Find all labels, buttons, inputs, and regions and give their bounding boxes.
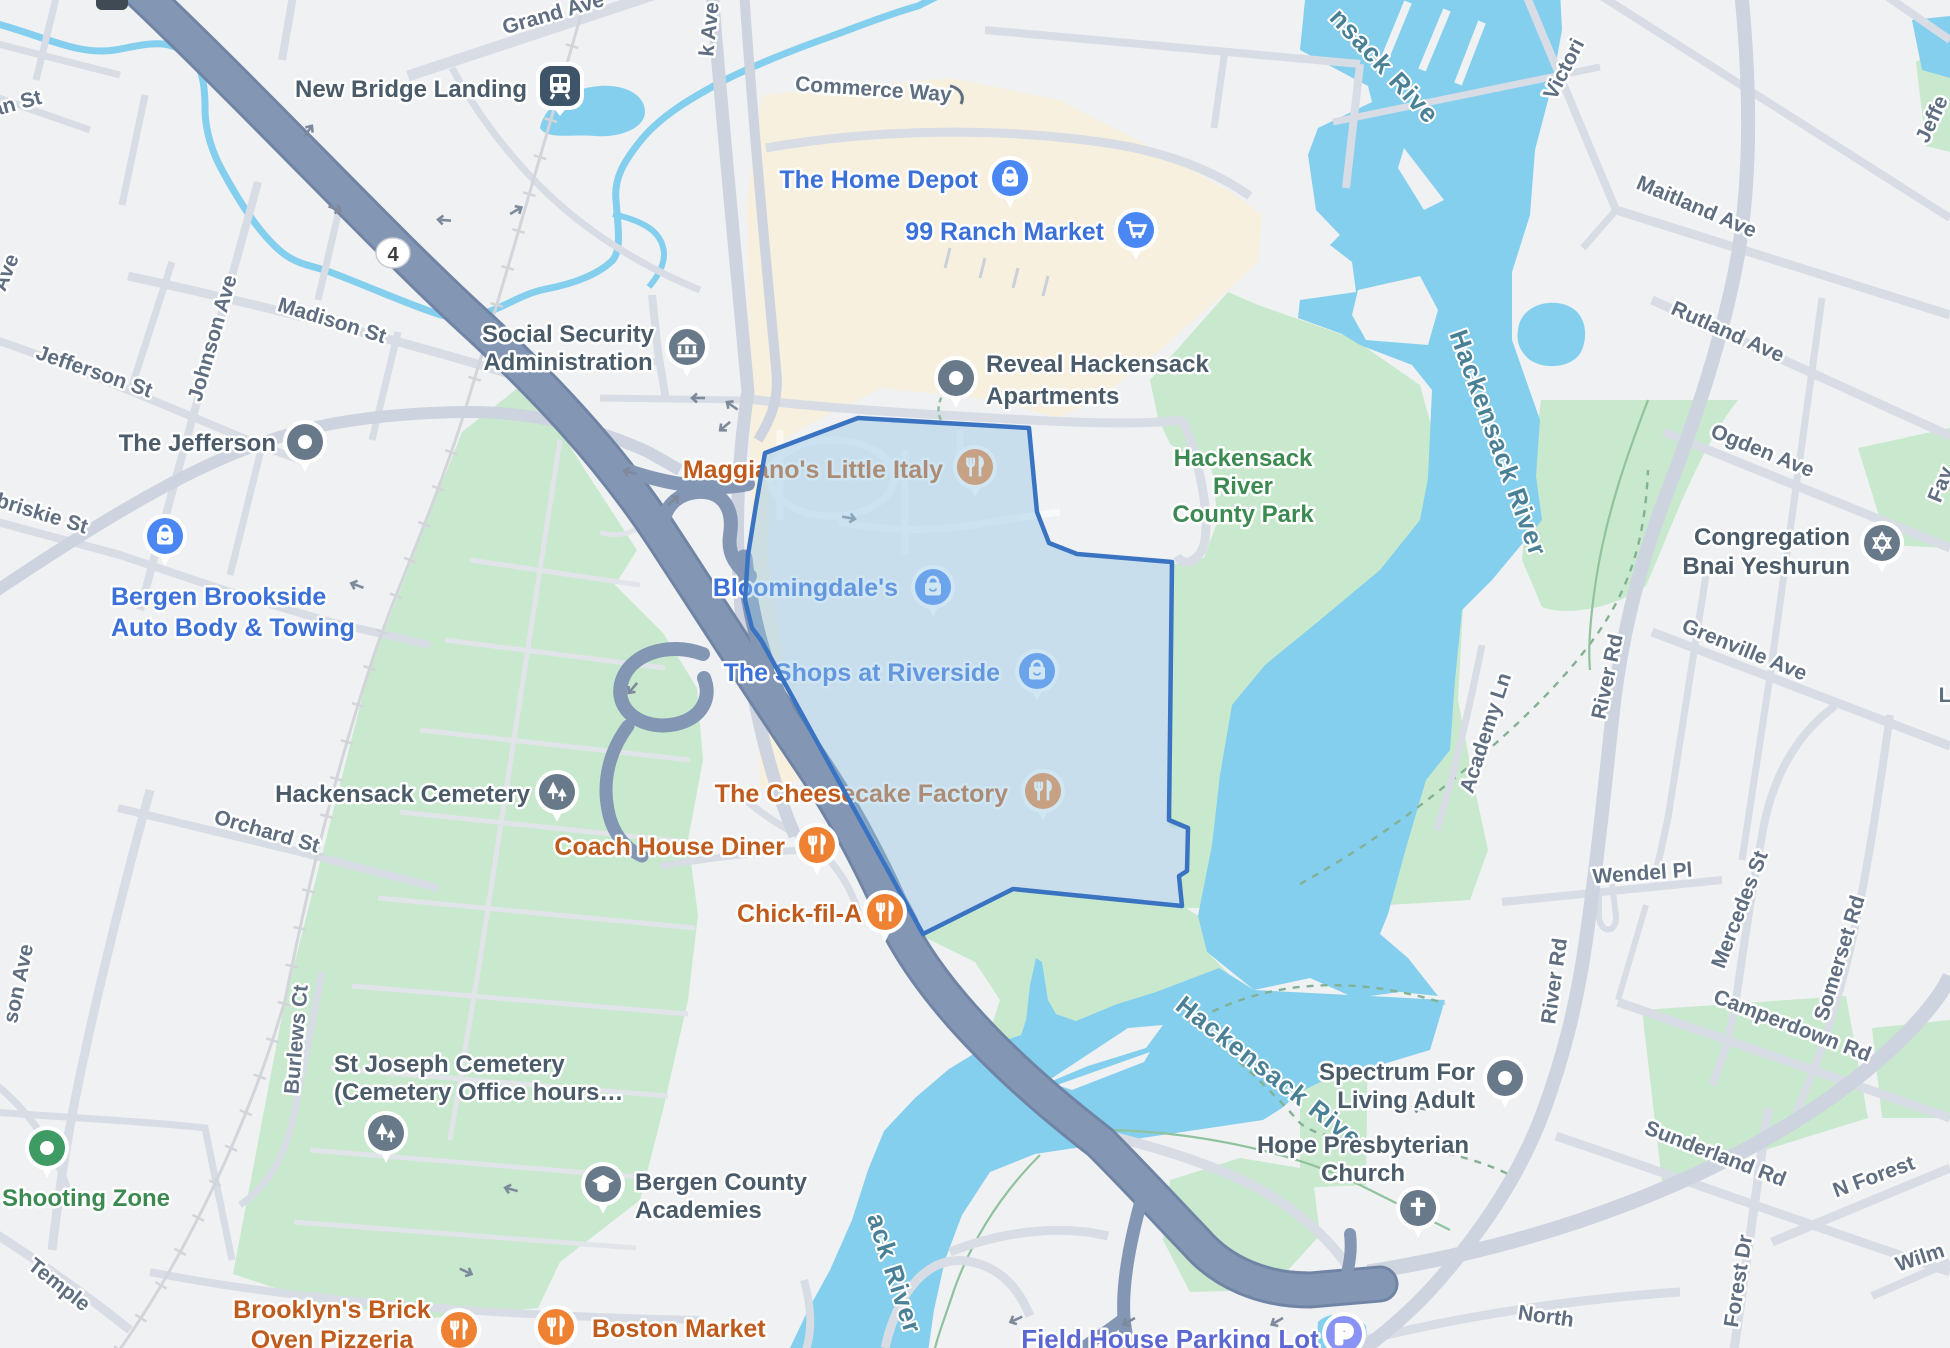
svg-text:Brooklyn's Brick: Brooklyn's Brick [233,1296,431,1324]
svg-text:Apartments: Apartments [986,383,1119,410]
svg-text:Hope Presbyterian: Hope Presbyterian [1257,1132,1469,1159]
svg-text:Oven Pizzeria: Oven Pizzeria [251,1326,415,1348]
svg-text:New Bridge Landing: New Bridge Landing [295,76,527,103]
svg-text:Living Adult: Living Adult [1337,1087,1475,1114]
svg-text:The Home Depot: The Home Depot [779,166,978,194]
svg-text:The Jefferson: The Jefferson [119,430,276,457]
svg-text:(Cemetery Office hours…: (Cemetery Office hours… [334,1079,623,1106]
svg-text:Bergen County: Bergen County [635,1169,808,1196]
svg-text:Auto Body & Towing: Auto Body & Towing [111,614,355,642]
svg-text:River: River [1213,473,1273,500]
svg-text:Spectrum For: Spectrum For [1319,1059,1475,1086]
svg-text:Boston Market: Boston Market [592,1315,766,1343]
svg-text:4: 4 [387,244,399,266]
svg-text:Church: Church [1321,1160,1405,1187]
svg-text:Congregation: Congregation [1694,524,1850,551]
svg-text:Bnai Yeshurun: Bnai Yeshurun [1682,553,1850,580]
svg-text:Bergen Brookside: Bergen Brookside [111,583,326,611]
svg-text:Academies: Academies [635,1197,762,1224]
svg-text:Administration: Administration [483,349,652,376]
svg-text:County Park: County Park [1172,501,1314,528]
svg-text:Chick-fil-A: Chick-fil-A [737,900,862,928]
svg-text:L: L [1939,684,1950,707]
svg-text:Reveal Hackensack: Reveal Hackensack [986,351,1209,378]
svg-text:Hackensack Cemetery: Hackensack Cemetery [275,781,530,808]
svg-text:Coach House Diner: Coach House Diner [554,833,785,861]
svg-text:Social Security: Social Security [482,321,655,348]
svg-text:P: P [1336,1321,1353,1348]
svg-text:99 Ranch Market: 99 Ranch Market [905,218,1104,246]
svg-text:Field House Parking Lot: Field House Parking Lot [1021,1324,1319,1348]
svg-text:Shooting Zone: Shooting Zone [2,1185,170,1212]
svg-text:St Joseph Cemetery: St Joseph Cemetery [334,1051,565,1078]
svg-text:Hackensack: Hackensack [1174,445,1313,472]
